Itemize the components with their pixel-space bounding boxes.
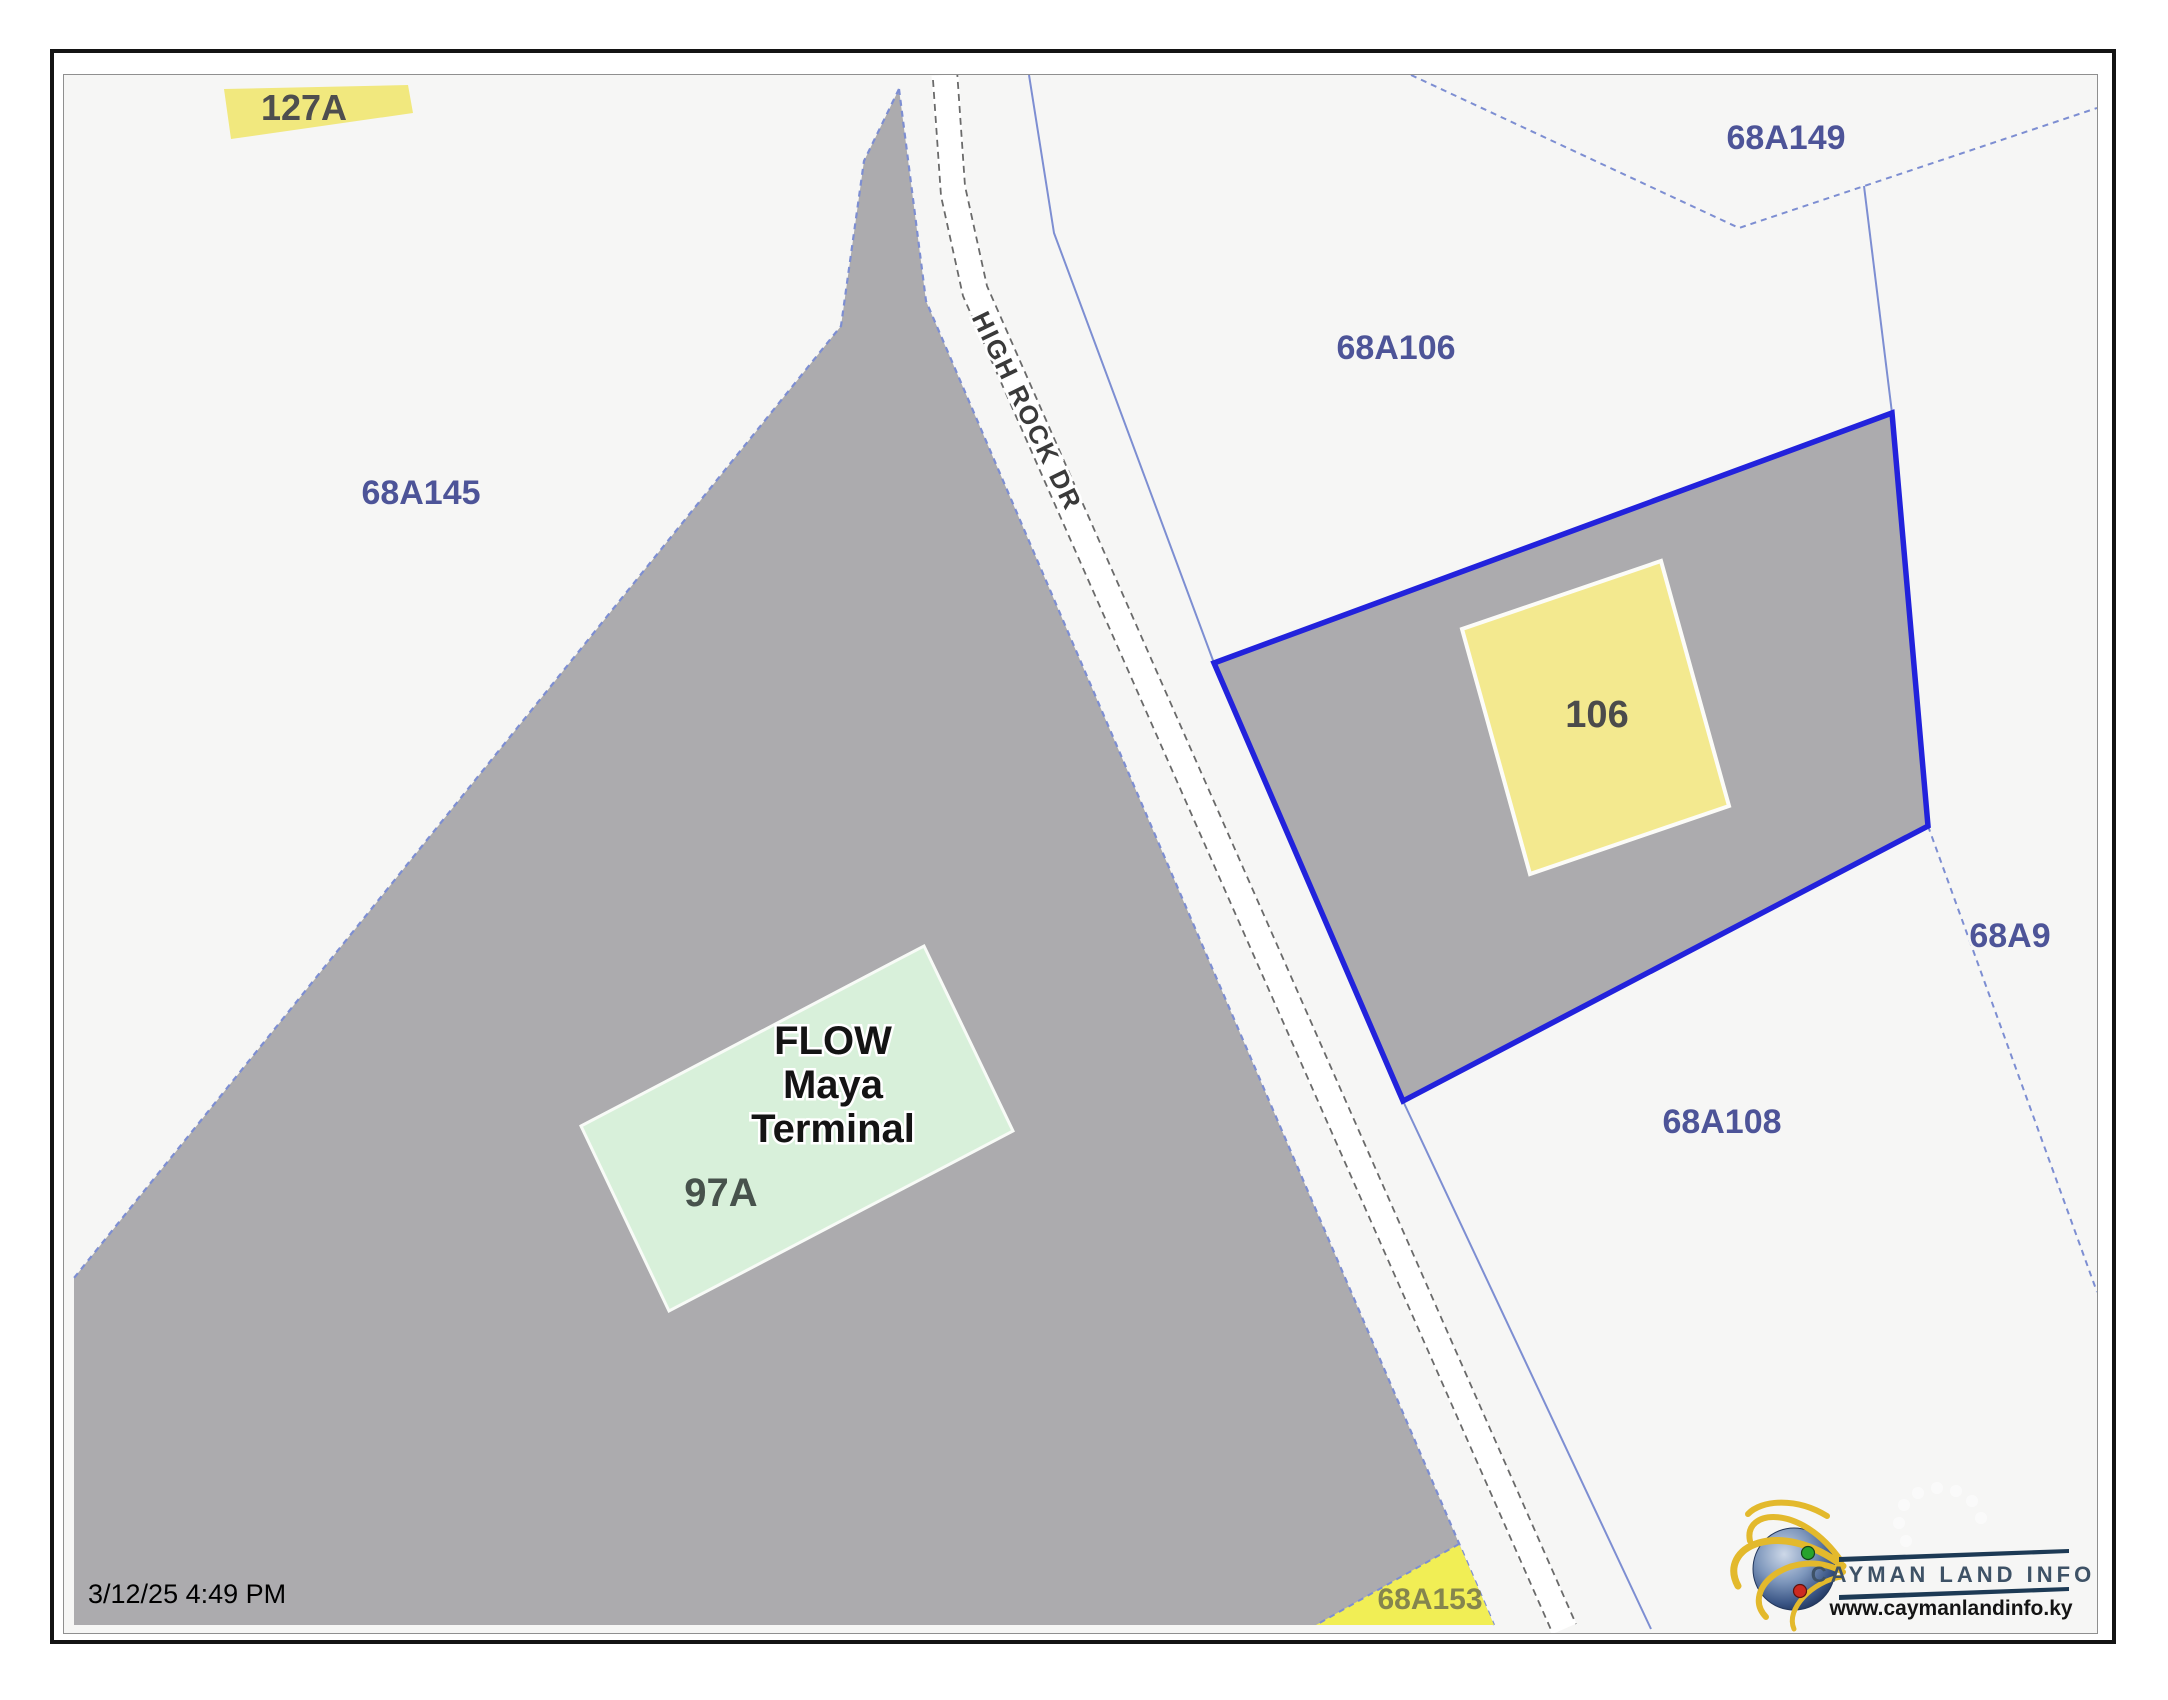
label-68A108: 68A108	[1662, 1103, 1781, 1141]
logo-website-link[interactable]: www.caymanlandinfo.ky	[1828, 1597, 2072, 1620]
cadastral-map: 127A 68A149 68A106 68A145 68A9 68A108 68…	[64, 75, 2097, 1633]
map-viewport[interactable]: 127A 68A149 68A106 68A145 68A9 68A108 68…	[63, 74, 2098, 1634]
label-68A9: 68A9	[1969, 917, 2050, 955]
label-97A: 97A	[684, 1171, 757, 1215]
timestamp: 3/12/25 4:49 PM	[88, 1579, 286, 1609]
map-page: 127A 68A149 68A106 68A145 68A9 68A108 68…	[0, 0, 2168, 1700]
label-68A149: 68A149	[1726, 119, 1845, 157]
label-68A145: 68A145	[361, 474, 480, 512]
logo-title: CAYMAN LAND INFO	[1811, 1562, 2095, 1587]
globe-green-dot	[1802, 1547, 1815, 1560]
label-flow-line2: Maya	[783, 1063, 884, 1107]
globe-red-dot	[1794, 1585, 1807, 1598]
label-building-106: 106	[1565, 694, 1628, 736]
label-68A153: 68A153	[1377, 1583, 1482, 1616]
label-flow-line3: Terminal	[751, 1107, 915, 1151]
label-flow-line1: FLOW	[774, 1019, 892, 1063]
label-127A: 127A	[261, 87, 347, 128]
label-68A106: 68A106	[1336, 329, 1455, 367]
